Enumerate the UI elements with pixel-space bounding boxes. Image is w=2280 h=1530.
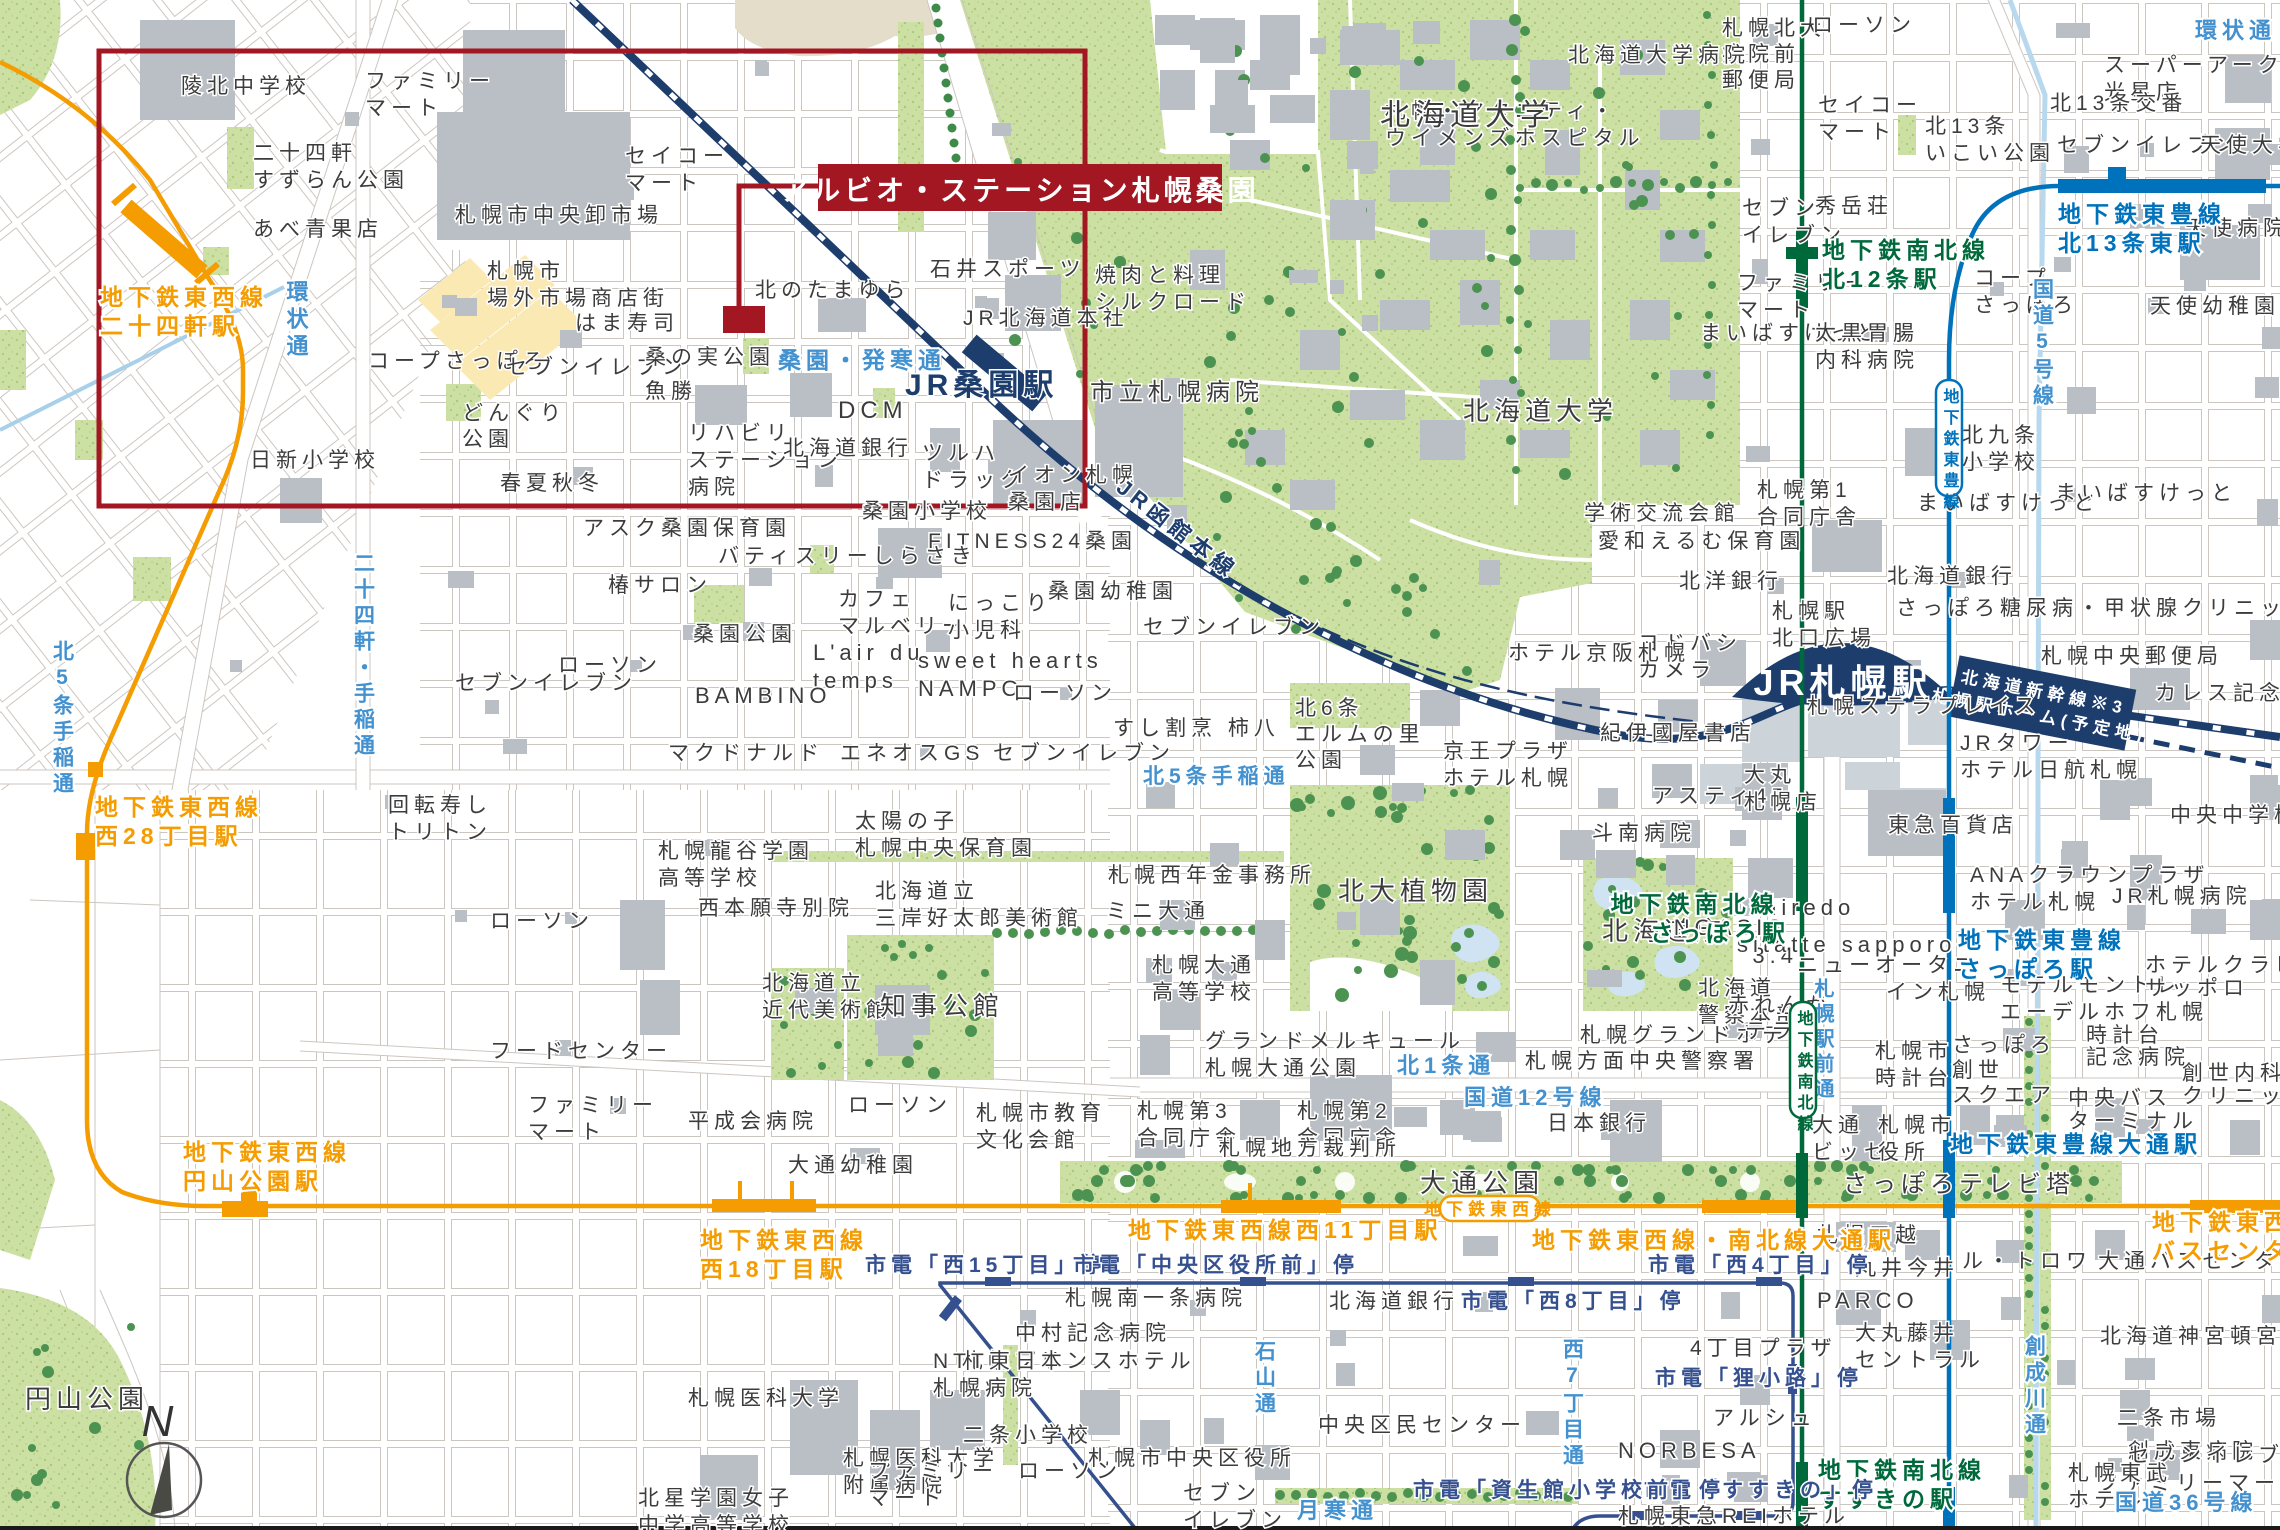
svg-text:北海道銀行: 北海道銀行	[1329, 1290, 1459, 1313]
svg-text:北洋銀行: 北洋銀行	[1679, 570, 1783, 593]
svg-text:桑園小学校: 桑園小学校	[862, 500, 992, 523]
svg-text:国道12号線: 国道12号線	[1464, 1085, 1606, 1110]
svg-text:日新小学校: 日新小学校	[250, 449, 380, 472]
svg-text:地下鉄東豊線大通駅: 地下鉄東豊線大通駅	[1950, 1131, 2202, 1157]
svg-text:JR札幌駅: JR札幌駅	[1753, 662, 1932, 703]
svg-text:東急百貨店: 東急百貨店	[1888, 814, 2018, 837]
svg-text:桑園幼稚園: 桑園幼稚園	[1048, 580, 1178, 603]
svg-text:札幌南一条病院: 札幌南一条病院	[1065, 1287, 1247, 1310]
svg-text:地下鉄東西線・南北線大通駅: 地下鉄東西線・南北線大通駅	[1532, 1227, 1896, 1253]
svg-text:環状通: 環状通	[284, 280, 309, 361]
svg-text:環状通: 環状通	[2195, 18, 2276, 43]
svg-text:天使幼稚園: 天使幼稚園	[2150, 295, 2280, 318]
svg-text:あべ青果店: あべ青果店	[253, 218, 383, 241]
svg-text:桑園公園: 桑園公園	[693, 623, 797, 646]
svg-text:フードセンター: フードセンター	[490, 1040, 672, 1063]
svg-text:ローソン: ローソン	[490, 910, 594, 933]
svg-text:中央バス ターミナル: 中央バス ターミナル	[2068, 1087, 2198, 1133]
svg-text:北海道大学病院: 北海道大学病院	[1568, 44, 1750, 67]
svg-text:市電「中央区役所前」停: 市電「中央区役所前」停	[1073, 1253, 1359, 1277]
svg-text:地下鉄東豊線: 地下鉄東豊線	[1941, 387, 1960, 514]
svg-text:魚勝: 魚勝	[645, 380, 697, 403]
svg-text:DCM: DCM	[838, 397, 908, 424]
svg-text:札幌東急REIホテル: 札幌東急REIホテル	[1618, 1505, 1850, 1528]
svg-text:斗南病院: 斗南病院	[1592, 822, 1696, 845]
svg-text:ミニ大通: ミニ大通	[1106, 900, 1210, 923]
svg-text:セブンイレブン: セブンイレブン	[455, 672, 637, 695]
svg-text:石山通: 石山通	[1253, 1340, 1278, 1418]
svg-text:セブンイレブン: セブンイレブン	[993, 742, 1175, 765]
svg-text:BAMBINO: BAMBINO	[695, 683, 831, 708]
svg-text:地下鉄東西線西11丁目駅: 地下鉄東西線西11丁目駅	[1128, 1217, 1442, 1243]
svg-text:市電「西8丁目」停: 市電「西8丁目」停	[1461, 1289, 1686, 1313]
svg-text:北海道神宮頓宮: 北海道神宮頓宮	[2100, 1325, 2280, 1348]
svg-text:天使大学: 天使大学	[2200, 134, 2280, 157]
svg-text:北1条通: 北1条通	[1397, 1053, 1495, 1078]
svg-text:アスク桑園保育園: アスク桑園保育園	[583, 517, 791, 540]
svg-text:大通公園: 大通公園	[1420, 1168, 1544, 1198]
svg-text:西7丁目通: 西7丁目通	[1561, 1338, 1585, 1470]
svg-text:さっぽろテレビ塔: さっぽろテレビ塔	[1843, 1171, 2075, 1198]
svg-text:札幌地方裁判所: 札幌地方裁判所	[1219, 1137, 1401, 1160]
svg-text:ローソン: ローソン	[1013, 682, 1117, 705]
svg-text:すし割烹 柿八: すし割烹 柿八	[1113, 717, 1280, 740]
svg-text:マクドナルド: マクドナルド	[668, 742, 824, 765]
svg-text:北5条手稲通: 北5条手稲通	[1143, 764, 1290, 788]
svg-text:市立札幌病院: 市立札幌病院	[1090, 379, 1264, 406]
svg-text:創世内科 クリニック: 創世内科 クリニック	[2182, 1062, 2280, 1108]
svg-text:ローソン: ローソン	[848, 1094, 952, 1117]
svg-text:JR北海道本社: JR北海道本社	[963, 307, 1129, 330]
svg-text:JR札幌病院: JR札幌病院	[2112, 885, 2252, 908]
svg-text:ローソン: ローソン	[1812, 14, 1916, 37]
svg-text:陵北中学校: 陵北中学校	[181, 75, 311, 98]
svg-text:市電「西15丁目」停: 市電「西15丁目」停	[865, 1253, 1106, 1277]
svg-text:春夏秋冬: 春夏秋冬	[500, 472, 604, 495]
svg-text:日本銀行: 日本銀行	[1547, 1112, 1651, 1135]
svg-text:アルビオ・ステーション札幌桑園: アルビオ・ステーション札幌桑園	[780, 175, 1259, 206]
svg-text:二条市場: 二条市場	[2117, 1407, 2221, 1430]
svg-text:紀伊國屋書店: 紀伊國屋書店	[1600, 722, 1756, 745]
svg-text:創成川通: 創成川通	[2023, 1334, 2048, 1439]
svg-text:地下鉄東西線: 地下鉄東西線	[1424, 1199, 1556, 1219]
svg-text:北海道大学: 北海道大学	[1463, 396, 1618, 426]
svg-text:国道5号線: 国道5号線	[2031, 278, 2055, 410]
svg-text:中村記念病院: 中村記念病院	[1015, 1322, 1171, 1345]
svg-text:市電「狸小路」停: 市電「狸小路」停	[1655, 1366, 1863, 1390]
svg-text:桑の実公園: 桑の実公園	[645, 346, 775, 369]
svg-text:カレス記念病院: カレス記念病院	[2155, 682, 2280, 705]
svg-text:椿サロン: 椿サロン	[608, 574, 712, 597]
svg-text:北のたまゆら: 北のたまゆら	[755, 279, 910, 302]
svg-text:エネオスGS: エネオスGS	[840, 742, 984, 765]
svg-text:北13条交番: 北13条交番	[2050, 92, 2187, 115]
svg-text:NORBESA: NORBESA	[1618, 1438, 1761, 1463]
svg-text:PARCO: PARCO	[1817, 1288, 1919, 1313]
svg-text:セブンイレブン: セブンイレブン	[1143, 616, 1325, 639]
svg-text:石井スポーツ: 石井スポーツ	[930, 258, 1086, 281]
svg-text:西本願寺別院: 西本願寺別院	[698, 897, 854, 920]
svg-text:北海道銀行: 北海道銀行	[783, 437, 913, 460]
svg-text:平成会病院: 平成会病院	[688, 1110, 818, 1133]
svg-text:二十四軒・手稲通: 二十四軒・手稲通	[352, 552, 376, 760]
svg-text:ル・トロワ: ル・トロワ	[1962, 1250, 2092, 1273]
svg-text:アルシュ: アルシュ	[1713, 1407, 1817, 1430]
svg-text:愛和えるむ保育園: 愛和えるむ保育園	[1598, 530, 1805, 553]
svg-text:学術交流会館: 学術交流会館	[1584, 502, 1740, 525]
svg-text:札幌西年金事務所: 札幌西年金事務所	[1108, 864, 1316, 887]
svg-text:知事公館: 知事公館	[880, 991, 1004, 1021]
svg-text:北海道銀行: 北海道銀行	[1887, 565, 2017, 588]
svg-text:ローソン: ローソン	[1018, 1460, 1122, 1483]
svg-text:4丁目プラザ: 4丁目プラザ	[1690, 1337, 1837, 1360]
svg-text:ホテル京阪札幌: ホテル京阪札幌	[1508, 642, 1690, 665]
svg-text:JR桑園駅: JR桑園駅	[905, 369, 1058, 402]
svg-text:二条小学校: 二条小学校	[963, 1424, 1093, 1447]
svg-text:中央中学校: 中央中学校	[2170, 804, 2280, 827]
svg-text:市電「資生館小学校前」停: 市電「資生館小学校前」停	[1413, 1478, 1725, 1502]
svg-text:北大植物園: 北大植物園	[1338, 876, 1493, 906]
svg-text:時計台 記念病院: 時計台 記念病院	[2086, 1024, 2190, 1069]
svg-text:どんぐり: どんぐり	[462, 402, 566, 425]
svg-text:はま寿司: はま寿司	[575, 312, 679, 335]
svg-text:公園: 公園	[462, 428, 514, 451]
svg-text:バティスリーしらさき: バティスリーしらさき	[718, 545, 977, 568]
svg-text:国道36号線: 国道36号線	[2115, 1490, 2257, 1515]
svg-text:大通幼稚園: 大通幼稚園	[788, 1154, 918, 1177]
svg-text:中央区民センター: 中央区民センター	[1318, 1414, 1526, 1437]
svg-text:北5条手稲通: 北5条手稲通	[51, 640, 75, 798]
svg-text:札幌医科大学: 札幌医科大学	[688, 1387, 844, 1410]
svg-text:北海道大学: 北海道大学	[1380, 99, 1555, 132]
svg-text:札幌中央郵便局: 札幌中央郵便局	[2041, 645, 2223, 668]
svg-text:月寒通: 月寒通	[1296, 1498, 1378, 1523]
svg-text:地下鉄南北線: 地下鉄南北線	[1795, 1009, 1814, 1136]
svg-text:市電「西4丁目」停: 市電「西4丁目」停	[1648, 1253, 1873, 1277]
svg-text:さっぽろ糖尿病・甲状腺クリニック: さっぽろ糖尿病・甲状腺クリニック	[1896, 597, 2280, 620]
svg-text:札幌市中央卸市場: 札幌市中央卸市場	[455, 204, 663, 227]
svg-text:北星学園女子 中学高等学校: 北星学園女子 中学高等学校	[638, 1487, 805, 1530]
svg-text:円山公園: 円山公園	[25, 1384, 149, 1414]
svg-text:札幌方面中央警察署: 札幌方面中央警察署	[1525, 1050, 1759, 1073]
